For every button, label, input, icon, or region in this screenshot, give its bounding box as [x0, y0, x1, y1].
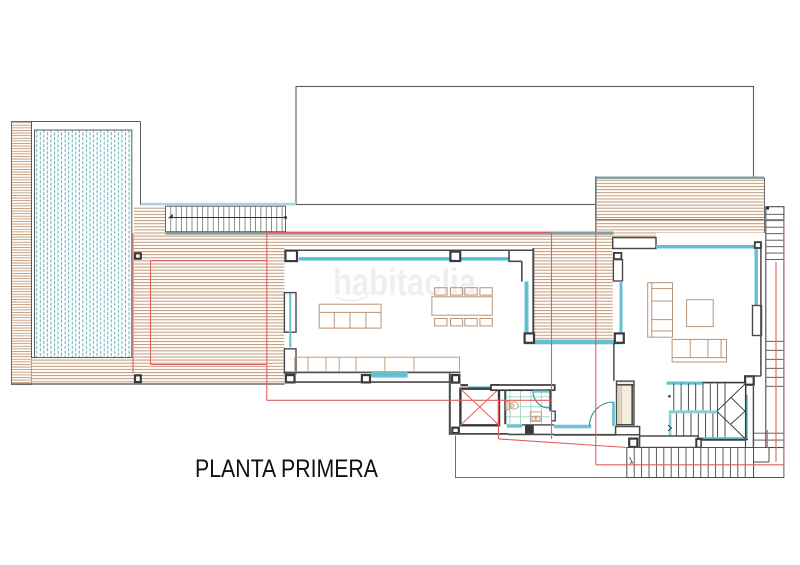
svg-text:PLANTA PRIMERA: PLANTA PRIMERA — [195, 455, 378, 483]
svg-text:habitaclia: habitaclia — [333, 262, 477, 304]
